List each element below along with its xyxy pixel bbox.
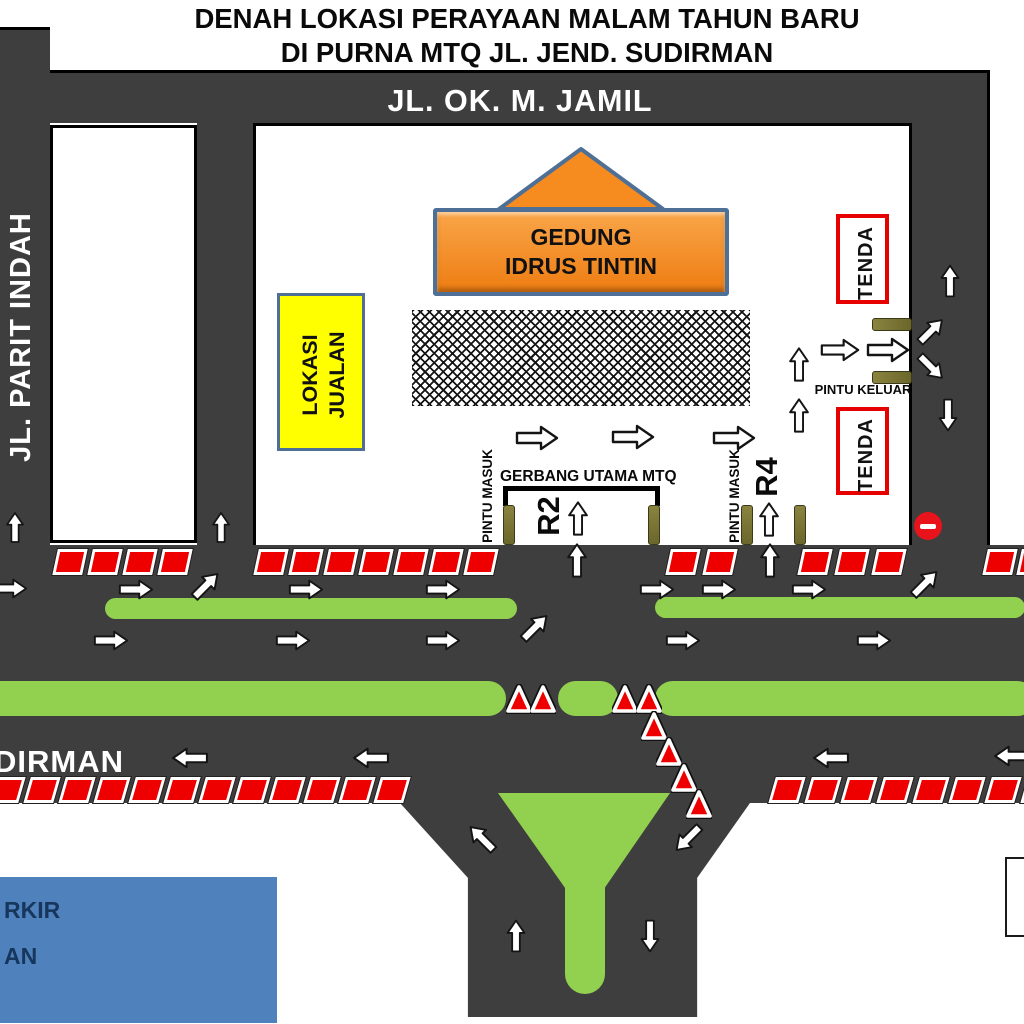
direction-arrow-up — [760, 542, 781, 578]
direction-arrow-up — [789, 397, 810, 433]
entrance-label-right: PINTU MASUK — [726, 446, 742, 546]
road-barrier — [87, 549, 123, 575]
direction-arrow-up — [789, 346, 810, 382]
direction-arrow-right — [425, 630, 461, 651]
no-entry-bar — [920, 524, 936, 530]
location-map: GEDUNG IDRUS TINTIN LOKASIJUALAN TENDA T… — [0, 0, 1024, 1024]
direction-arrow-right — [93, 630, 129, 651]
direction-arrow-right — [118, 579, 154, 600]
median-strip — [655, 597, 1024, 618]
direction-arrow-right — [0, 578, 28, 599]
direction-arrow-right — [665, 630, 701, 651]
gedung-idrus-tintin: GEDUNG IDRUS TINTIN — [433, 208, 729, 296]
main-gate-frame-right — [655, 488, 660, 506]
road-barrier — [428, 549, 464, 575]
road-label-jl-ok-m-jamil: JL. OK. M. JAMIL — [50, 84, 990, 119]
median-strip — [0, 681, 506, 716]
road-barrier — [834, 549, 870, 575]
direction-arrow-left — [812, 747, 850, 769]
direction-arrow-down — [938, 398, 958, 432]
main-gate-frame — [503, 486, 660, 491]
traffic-cone — [530, 684, 556, 714]
lokasi-jualan-label: LOKASIJUALAN — [280, 296, 368, 454]
map-title-line1: DENAH LOKASI PERAYAAN MALAM TAHUN BARU — [30, 3, 1024, 35]
legend-white-box — [1005, 857, 1024, 937]
gate-post — [741, 505, 753, 545]
direction-arrow-up — [212, 511, 231, 543]
direction-arrow-right — [866, 337, 910, 363]
map-title-line2: DI PURNA MTQ JL. JEND. SUDIRMAN — [30, 37, 1024, 69]
road-barrier — [871, 549, 907, 575]
main-gate-frame-left — [503, 488, 508, 506]
direction-arrow-right — [820, 338, 860, 362]
road-label-jl-parit-indah: JL. PARIT INDAH — [5, 107, 45, 567]
city-block — [50, 125, 197, 543]
road-barrier — [393, 549, 429, 575]
road-barrier — [253, 549, 289, 575]
gate-post — [503, 505, 515, 545]
gate-post — [872, 318, 912, 331]
no-entry-sign — [914, 512, 942, 540]
building-label-line1: GEDUNG — [531, 223, 632, 252]
lane-label-r2: R2 — [529, 486, 569, 546]
building-roof — [495, 145, 667, 213]
crowd-hatched-area — [412, 310, 750, 406]
direction-arrow-right — [611, 424, 655, 450]
traffic-cone — [506, 684, 532, 714]
legend-text-fragment-2: AN — [4, 943, 37, 970]
direction-arrow-up — [6, 511, 25, 543]
road-barrier — [52, 549, 88, 575]
direction-arrow-down — [640, 919, 660, 953]
entrance-label-left: PINTU MASUK — [479, 446, 495, 546]
road-barrier — [323, 549, 359, 575]
direction-arrow-up — [506, 919, 526, 953]
road-barrier — [702, 549, 738, 575]
median-strip — [558, 681, 618, 716]
direction-arrow-right — [425, 579, 461, 600]
direction-arrow-left — [352, 747, 390, 769]
direction-arrow-right — [288, 579, 324, 600]
tenda-bottom-box: TENDA — [836, 407, 889, 495]
gate-post — [794, 505, 806, 545]
lokasi-jualan-box: LOKASIJUALAN — [277, 293, 365, 451]
road-barrier — [288, 549, 324, 575]
building-label-line2: IDRUS TINTIN — [505, 252, 657, 281]
direction-arrow-right — [515, 425, 559, 451]
median-strip — [655, 681, 1024, 716]
direction-arrow-right — [701, 579, 737, 600]
road-barrier — [122, 549, 158, 575]
direction-arrow-up — [759, 501, 780, 537]
direction-arrow-right — [712, 425, 756, 451]
gate-post — [872, 371, 912, 384]
traffic-cone — [612, 684, 638, 714]
main-gate-label: GERBANG UTAMA MTQ — [500, 468, 664, 486]
road-barrier — [665, 549, 701, 575]
road-barrier — [982, 549, 1018, 575]
gate-post — [648, 505, 660, 545]
tenda-bottom-label: TENDA — [840, 411, 892, 499]
direction-arrow-right — [791, 579, 827, 600]
road-inner-vertical — [197, 123, 253, 547]
direction-arrow-right — [856, 630, 892, 651]
road-barrier — [797, 549, 833, 575]
tenda-top-box: TENDA — [836, 214, 889, 304]
median-strip — [105, 598, 517, 619]
tenda-top-label: TENDA — [840, 219, 892, 307]
direction-arrow-left — [993, 745, 1024, 767]
exit-gate-label: PINTU KELUAR — [810, 382, 916, 397]
road-barrier — [358, 549, 394, 575]
traffic-cone — [636, 684, 662, 714]
road-barrier — [463, 549, 499, 575]
direction-arrow-up — [940, 264, 960, 298]
direction-arrow-left — [171, 747, 209, 769]
direction-arrow-up — [568, 500, 589, 536]
traffic-cone — [686, 789, 712, 819]
legend-blue-box: RKIR AN — [0, 877, 277, 1023]
median-funnel-stem — [565, 886, 605, 994]
road-label-sudirman-fragment: DIRMAN — [0, 744, 124, 780]
lane-label-r4: R4 — [747, 447, 787, 507]
direction-arrow-right — [639, 579, 675, 600]
direction-arrow-right — [275, 630, 311, 651]
direction-arrow-up — [567, 542, 588, 578]
road-barrier — [157, 549, 193, 575]
legend-text-fragment-1: RKIR — [4, 897, 60, 924]
